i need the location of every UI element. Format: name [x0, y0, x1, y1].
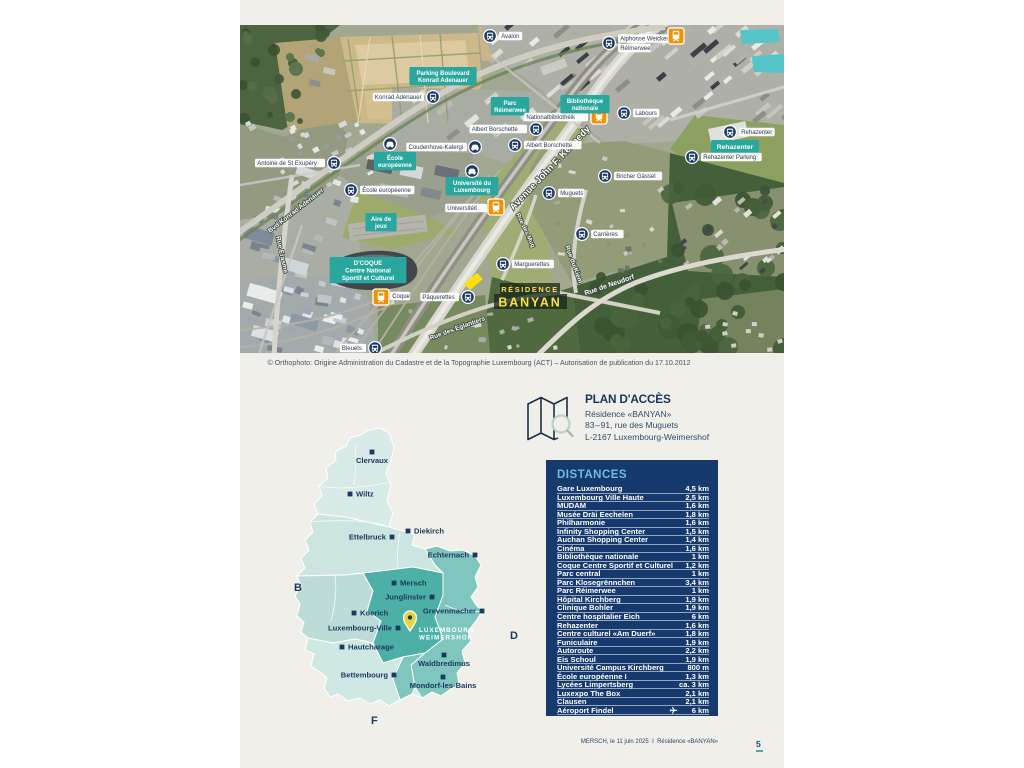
svg-text:RÉSIDENCE: RÉSIDENCE — [501, 285, 559, 294]
svg-text:LUXEMBOURG: LUXEMBOURG — [419, 627, 475, 634]
svg-text:Wiltz: Wiltz — [356, 490, 374, 499]
svg-text:Alphonse Weicker: Alphonse Weicker — [620, 37, 668, 43]
svg-text:Ettelbruck: Ettelbruck — [349, 533, 387, 542]
svg-text:Luxembourg-Ville: Luxembourg-Ville — [328, 624, 392, 633]
svg-text:Centre National: Centre National — [345, 268, 391, 275]
svg-text:Avalon: Avalon — [501, 34, 519, 40]
svg-text:Parking Boulevard: Parking Boulevard — [416, 71, 469, 77]
svg-text:Bricher Gässel: Bricher Gässel — [616, 174, 655, 180]
svg-text:Nationalbibliothéik: Nationalbibliothéik — [526, 115, 576, 121]
svg-text:Carrières: Carrières — [593, 232, 618, 238]
svg-text:BANYAN: BANYAN — [498, 296, 561, 310]
svg-text:Waldbredimus: Waldbredimus — [418, 659, 470, 668]
svg-text:Pâquerettes: Pâquerettes — [422, 295, 454, 301]
svg-text:Clervaux: Clervaux — [356, 456, 389, 465]
svg-text:Konrad Adenauer: Konrad Adenauer — [375, 95, 422, 101]
svg-text:Antoine de St Exupéry: Antoine de St Exupéry — [257, 161, 317, 167]
svg-text:Koerich: Koerich — [360, 609, 389, 618]
svg-text:Muguets: Muguets — [560, 191, 583, 197]
svg-text:D: D — [510, 630, 518, 642]
svg-text:B: B — [294, 582, 302, 594]
svg-text:Aire de: Aire de — [371, 217, 392, 223]
svg-text:Echternach: Echternach — [428, 551, 470, 560]
svg-text:F: F — [371, 715, 378, 727]
svg-text:WEIMERSHOF: WEIMERSHOF — [419, 635, 473, 642]
svg-text:Réimerwee: Réimerwee — [620, 46, 651, 52]
svg-text:Rehazenter: Rehazenter — [717, 144, 754, 151]
svg-text:Mondorf-les-Bains: Mondorf-les-Bains — [410, 681, 477, 690]
svg-text:Réimerwee: Réimerwee — [494, 108, 526, 114]
svg-text:Rehazenter: Rehazenter — [741, 130, 772, 136]
svg-text:Grevenmacher: Grevenmacher — [423, 607, 476, 616]
svg-text:D'COQUE: D'COQUE — [354, 260, 383, 267]
svg-text:Bleuets: Bleuets — [342, 346, 362, 352]
svg-text:Albert Borschette: Albert Borschette — [526, 143, 573, 149]
svg-text:Luxembourg: Luxembourg — [454, 188, 491, 194]
svg-text:nationale: nationale — [572, 106, 599, 112]
svg-text:Rehazenter Parking: Rehazenter Parking — [703, 155, 756, 161]
svg-text:Coque: Coque — [392, 294, 410, 300]
svg-text:Diekirch: Diekirch — [414, 527, 444, 536]
svg-text:École européenne: École européenne — [362, 187, 411, 194]
svg-text:Universitéit: Universitéit — [447, 206, 477, 212]
svg-text:Konrad Adenauer: Konrad Adenauer — [418, 78, 469, 84]
svg-text:Marguerettes: Marguerettes — [514, 262, 549, 268]
svg-text:École: École — [387, 154, 404, 162]
svg-text:Bettembourg: Bettembourg — [341, 671, 389, 680]
svg-text:Mersch: Mersch — [400, 579, 427, 588]
svg-text:Sportif et Culturel: Sportif et Culturel — [342, 275, 395, 282]
svg-text:Bibliothèque: Bibliothèque — [567, 99, 604, 105]
svg-text:Junglinster: Junglinster — [385, 593, 426, 602]
svg-text:Université du: Université du — [453, 181, 491, 187]
svg-text:européenne: européenne — [378, 163, 413, 169]
svg-text:jeux: jeux — [374, 224, 388, 230]
svg-text:Coudenhove-Kalergi: Coudenhove-Kalergi — [409, 145, 464, 151]
svg-text:Parc: Parc — [503, 101, 517, 107]
svg-text:Labours: Labours — [635, 111, 657, 117]
svg-text:Albert Borschette: Albert Borschette — [472, 127, 519, 133]
svg-text:Hautcharage: Hautcharage — [348, 643, 394, 652]
